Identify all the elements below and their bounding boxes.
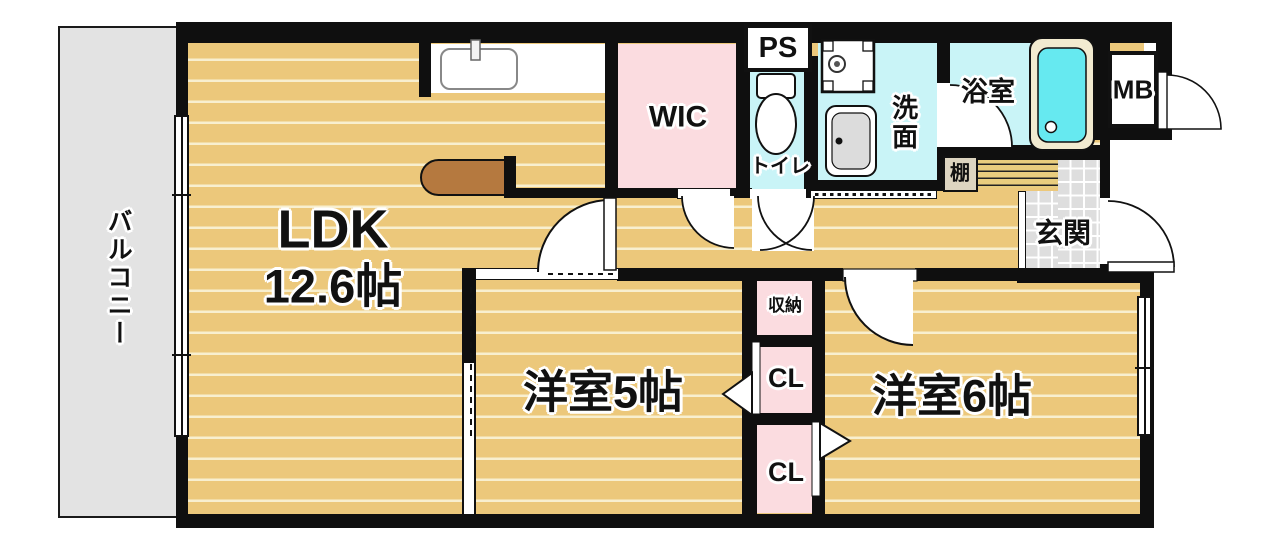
bedroom5-label: 洋室5帖 [523,368,683,415]
washer-corner [823,81,833,91]
closet-upper-arrow [723,373,752,415]
toilet-door-swing [752,198,814,251]
closet-upper-label: CL [768,364,804,392]
fixtures-and-doors [0,0,1280,546]
ldk-label: LDK [278,202,389,259]
wic-label: WIC [649,101,707,133]
bedroom6-label: 洋室6帖 [872,372,1032,419]
washer-drain-inner [834,61,840,67]
front-door-swing [1108,201,1174,267]
ldk-door-swing [538,200,610,272]
washer-corner [823,41,833,51]
floor-plan: バルコニー LDK 12.6帖 WIC PS トイレ 洗面 浴室 MB 棚 玄関… [0,0,1280,546]
mb-door-swing [1167,75,1221,129]
washer-corner [863,41,873,51]
shelf-label: 棚 [950,164,970,185]
bedroom6-door-swing [845,277,913,345]
washer-corner [863,81,873,91]
vanity-drain [836,138,843,145]
bathroom-label: 浴室 [961,78,1015,106]
closet-lower-label: CL [768,458,804,486]
toilet-bowl [756,94,796,154]
mb-door-leaf [1158,72,1167,129]
closet-lower-arrow [820,423,850,459]
closet-upper-door-panel [752,342,760,414]
balcony-label: バルコニー [105,208,131,348]
ldk-size-label: 12.6帖 [264,261,402,310]
entrance-label: 玄関 [1035,218,1091,247]
front-door-leaf [1108,262,1174,272]
closet-lower-door-panel [812,422,820,496]
storage-label: 収納 [768,297,802,315]
ps-label: PS [759,33,798,63]
meter-box-label: MB [1113,76,1153,103]
toilet-label: トイレ [750,157,810,178]
ldk-door-leaf [604,198,616,270]
bathtub-drain [1046,122,1057,133]
washroom-label: 洗面 [889,94,916,152]
kitchen-faucet [471,40,480,60]
